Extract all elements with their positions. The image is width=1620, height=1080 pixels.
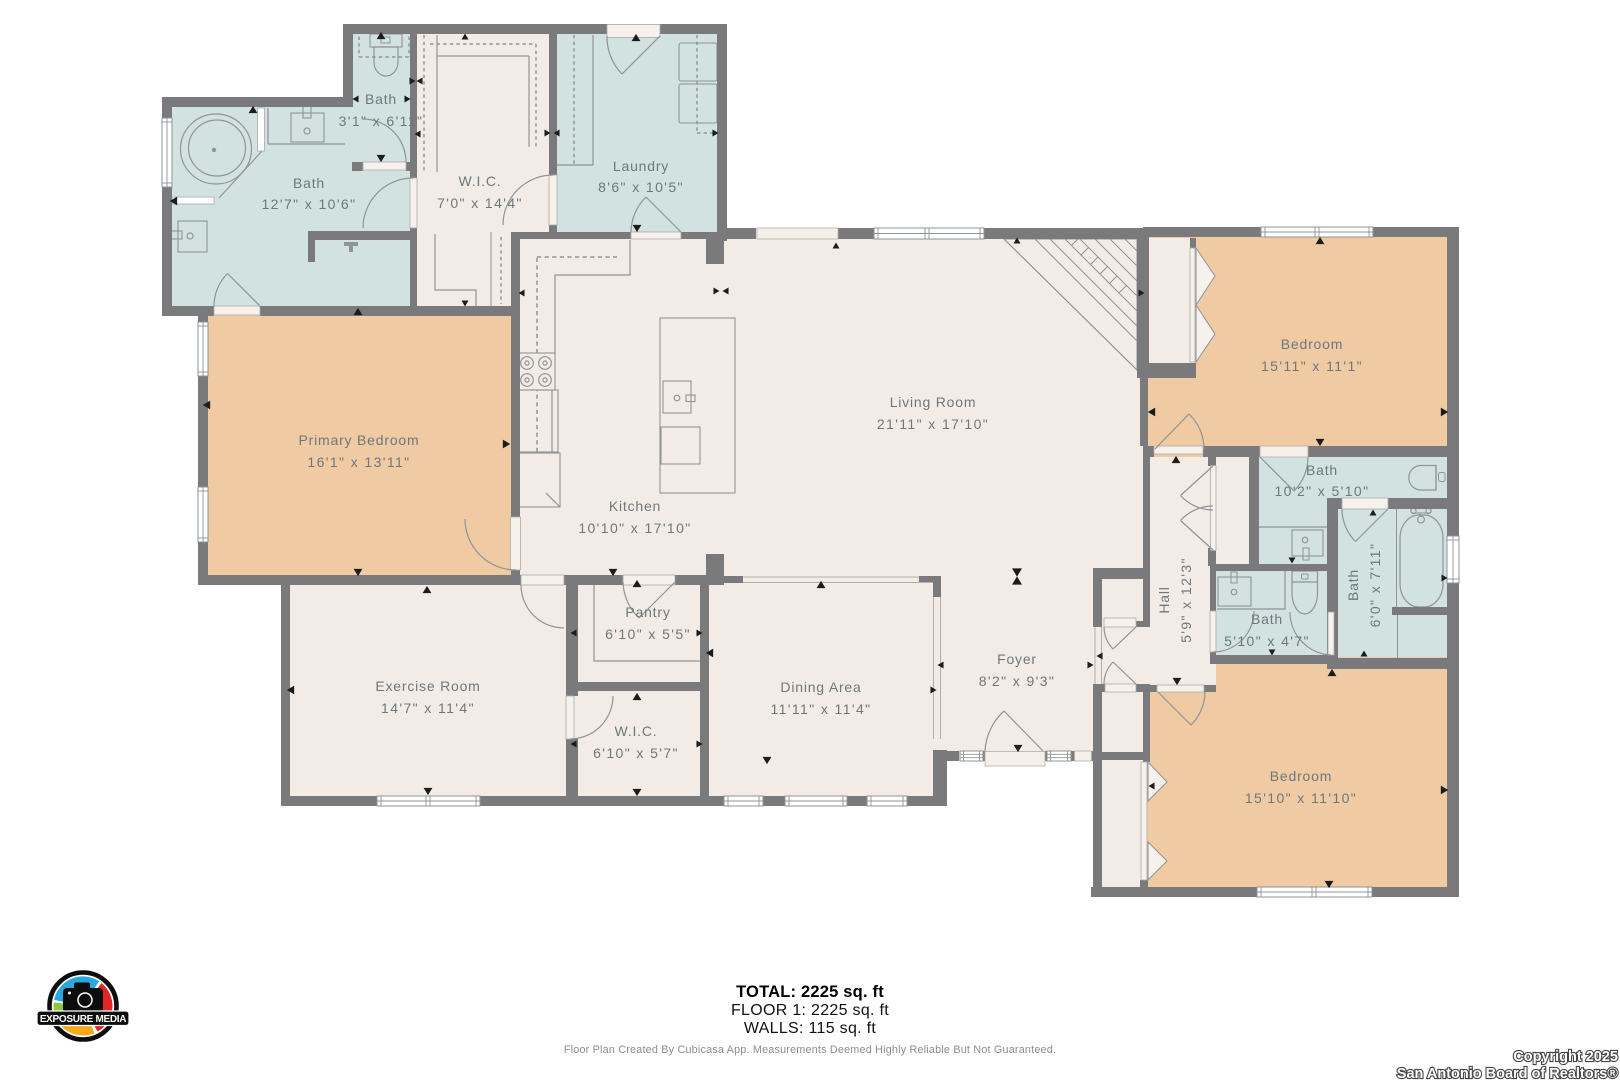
- svg-text:6'10" x 5'5": 6'10" x 5'5": [605, 626, 691, 642]
- svg-text:11'11" x 11'4": 11'11" x 11'4": [770, 701, 871, 717]
- svg-text:6'0" x 7'11": 6'0" x 7'11": [1367, 543, 1383, 628]
- svg-text:EXPOSURE MEDIA: EXPOSURE MEDIA: [40, 1014, 126, 1025]
- svg-text:21'11" x 17'10": 21'11" x 17'10": [877, 416, 989, 432]
- svg-text:Primary Bedroom: Primary Bedroom: [299, 432, 420, 448]
- svg-text:W.I.C.: W.I.C.: [615, 723, 658, 739]
- svg-text:Bedroom: Bedroom: [1270, 768, 1332, 784]
- svg-text:Kitchen: Kitchen: [609, 498, 661, 514]
- svg-text:Living Room: Living Room: [890, 394, 977, 410]
- svg-text:Foyer: Foyer: [997, 651, 1037, 667]
- svg-text:3'1" x 6'11": 3'1" x 6'11": [339, 113, 424, 129]
- svg-text:Dining Area: Dining Area: [780, 679, 861, 695]
- svg-text:12'7" x 10'6": 12'7" x 10'6": [262, 196, 357, 212]
- svg-text:Bath: Bath: [293, 175, 325, 191]
- svg-text:10'10" x 17'10": 10'10" x 17'10": [578, 520, 691, 536]
- svg-text:6'10" x 5'7": 6'10" x 5'7": [593, 745, 679, 761]
- svg-text:10'2" x 5'10": 10'2" x 5'10": [1275, 483, 1370, 499]
- svg-text:W.I.C.: W.I.C.: [459, 173, 502, 189]
- svg-text:Bath: Bath: [1345, 569, 1361, 601]
- svg-text:Exercise Room: Exercise Room: [375, 678, 480, 694]
- svg-text:FLOOR 1: 2225 sq. ft: FLOOR 1: 2225 sq. ft: [731, 1002, 889, 1019]
- svg-text:7'0" x 14'4": 7'0" x 14'4": [437, 195, 523, 211]
- svg-text:Bedroom: Bedroom: [1281, 336, 1343, 352]
- svg-text:Laundry: Laundry: [613, 158, 669, 174]
- svg-text:TOTAL: 2225 sq. ft: TOTAL: 2225 sq. ft: [736, 983, 884, 1001]
- svg-text:Pantry: Pantry: [625, 604, 670, 620]
- svg-text:Bath: Bath: [1306, 462, 1338, 478]
- svg-text:Copyright 2025: Copyright 2025: [1513, 1049, 1618, 1065]
- svg-text:15'10" x 11'10": 15'10" x 11'10": [1245, 790, 1357, 806]
- svg-text:5'9" x 12'3": 5'9" x 12'3": [1178, 557, 1194, 643]
- svg-text:WALLS: 115 sq. ft: WALLS: 115 sq. ft: [744, 1020, 877, 1037]
- svg-text:8'6" x 10'5": 8'6" x 10'5": [598, 179, 684, 195]
- svg-text:Bath: Bath: [365, 91, 397, 107]
- svg-text:5'10" x 4'7": 5'10" x 4'7": [1224, 633, 1310, 649]
- svg-text:Hall: Hall: [1156, 586, 1172, 613]
- svg-text:15'11" x 11'1": 15'11" x 11'1": [1261, 358, 1363, 374]
- svg-text:16'1" x 13'11": 16'1" x 13'11": [307, 454, 410, 470]
- svg-text:8'2" x 9'3": 8'2" x 9'3": [979, 673, 1056, 689]
- svg-text:Floor Plan Created By Cubicasa: Floor Plan Created By Cubicasa App. Meas…: [564, 1044, 1056, 1056]
- svg-text:Bath: Bath: [1251, 611, 1283, 627]
- svg-text:San Antonio Board of Realtors®: San Antonio Board of Realtors®: [1397, 1066, 1619, 1080]
- svg-text:14'7" x 11'4": 14'7" x 11'4": [381, 700, 475, 716]
